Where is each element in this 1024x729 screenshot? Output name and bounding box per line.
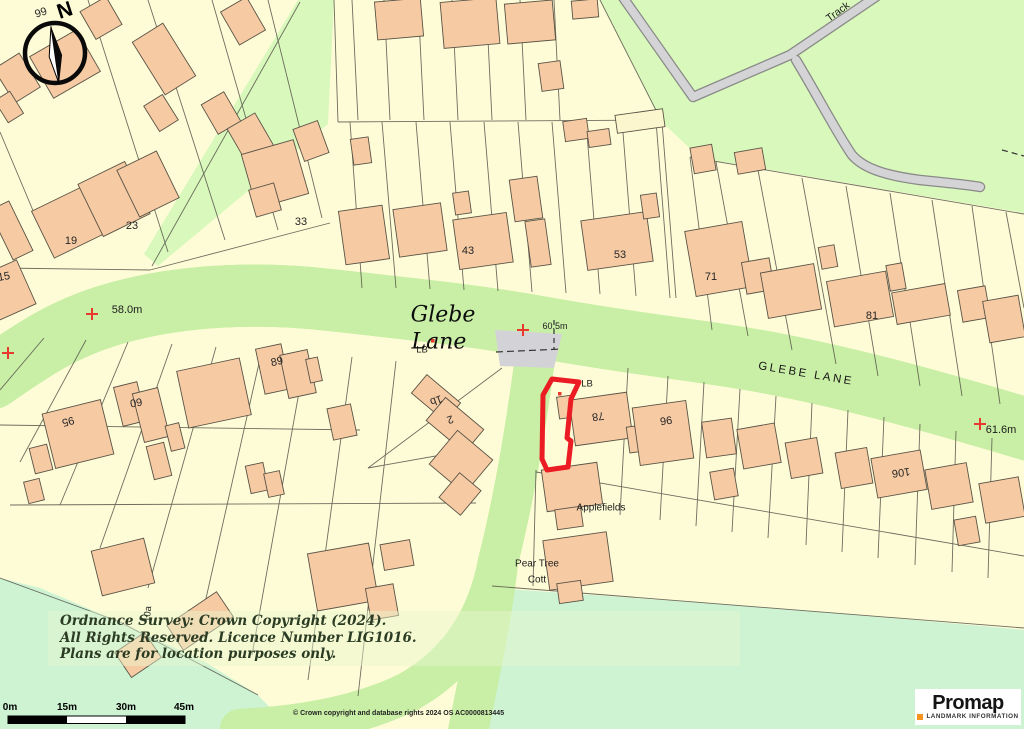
building-footprint bbox=[29, 444, 53, 474]
building-footprint bbox=[350, 137, 371, 165]
building-footprint bbox=[538, 61, 564, 92]
copyright-line: Plans are for location purposes only. bbox=[60, 646, 417, 663]
building-footprint bbox=[393, 203, 447, 257]
building-footprint bbox=[569, 392, 633, 446]
building-footprint bbox=[380, 540, 414, 571]
building-footprint bbox=[557, 580, 584, 603]
building-footprint bbox=[835, 447, 873, 488]
building-footprint bbox=[632, 401, 694, 466]
scale-label-45m: 45m bbox=[174, 702, 194, 713]
parcel-boundary-line bbox=[732, 389, 740, 532]
building-footprint bbox=[871, 450, 927, 498]
building-footprint bbox=[886, 263, 906, 291]
scale-bar bbox=[8, 716, 185, 724]
parcel-boundary-line bbox=[352, 0, 358, 120]
parcel-boundary-line bbox=[0, 268, 150, 270]
building-footprint bbox=[165, 423, 185, 452]
building-footprint bbox=[983, 295, 1024, 343]
building-footprint bbox=[42, 400, 114, 469]
building-footprint bbox=[760, 264, 821, 319]
building-footprint bbox=[954, 516, 980, 545]
building-footprint bbox=[264, 471, 285, 498]
building-footprint bbox=[504, 0, 555, 44]
parcel-boundary-line bbox=[620, 368, 628, 515]
os-attribution: © Crown copyright and database rights 20… bbox=[293, 710, 504, 717]
building-footprint bbox=[587, 129, 611, 148]
promap-logo: Promap LANDMARK INFORMATION bbox=[915, 689, 1021, 725]
parcel-boundary-line bbox=[10, 503, 476, 505]
building-footprint bbox=[132, 388, 169, 443]
parcel-boundary-line bbox=[338, 120, 660, 122]
building-footprint bbox=[685, 221, 754, 296]
building-footprint bbox=[979, 477, 1024, 523]
building-footprint bbox=[818, 245, 838, 269]
building-footprint bbox=[374, 0, 423, 40]
building-footprint bbox=[327, 404, 357, 440]
building-footprint bbox=[132, 23, 195, 95]
building-footprint bbox=[177, 358, 252, 428]
building-footprint bbox=[525, 219, 551, 267]
scale-label-30m: 30m bbox=[116, 702, 136, 713]
building-footprint bbox=[30, 30, 101, 99]
building-footprint bbox=[581, 212, 653, 271]
building-footprint bbox=[737, 423, 781, 469]
map-viewport: 99N15192333435371819560891b2789610610a58… bbox=[0, 0, 1024, 729]
building-footprint bbox=[453, 191, 472, 215]
building-footprint bbox=[710, 468, 738, 500]
parcel-boundary-line bbox=[915, 424, 920, 565]
parcel-boundary-line bbox=[554, 0, 560, 120]
building-footprint bbox=[734, 148, 765, 175]
building-footprint bbox=[0, 260, 36, 320]
promap-logo-tagline: LANDMARK INFORMATION bbox=[926, 713, 1018, 720]
building-footprint bbox=[338, 205, 389, 265]
scale-label-15m: 15m bbox=[57, 702, 77, 713]
parcel-boundary-line bbox=[696, 382, 704, 526]
building-footprint bbox=[221, 0, 266, 45]
building-footprint bbox=[509, 176, 543, 221]
building-footprint bbox=[925, 463, 973, 510]
building-footprint bbox=[826, 271, 893, 327]
parcel-boundary-line bbox=[622, 120, 636, 296]
building-footprint bbox=[555, 506, 584, 529]
parcel-boundary-line bbox=[382, 122, 396, 288]
scale-label-0m: 0m bbox=[3, 702, 17, 713]
parcel-boundary-line bbox=[768, 396, 776, 538]
building-footprint bbox=[144, 94, 179, 131]
building-footprint bbox=[453, 212, 513, 269]
building-footprint bbox=[690, 144, 716, 173]
building-footprint bbox=[80, 0, 122, 39]
copyright-line: All Rights Reserved. Licence Number LIG1… bbox=[60, 630, 417, 647]
building-footprint bbox=[615, 109, 665, 134]
building-footprint bbox=[702, 418, 737, 458]
copyright-line: Ordnance Survey: Crown Copyright (2024). bbox=[60, 613, 417, 630]
building-footprint bbox=[563, 118, 590, 141]
building-footprint bbox=[440, 0, 500, 48]
building-footprint bbox=[146, 442, 172, 479]
building-footprint bbox=[785, 437, 823, 478]
building-footprint bbox=[640, 193, 659, 219]
promap-orange-dot-icon bbox=[917, 714, 923, 720]
building-footprint bbox=[24, 478, 45, 503]
parcel-boundary-line bbox=[662, 122, 676, 298]
building-footprint bbox=[0, 201, 33, 260]
copyright-notice: Ordnance Survey: Crown Copyright (2024).… bbox=[60, 613, 417, 663]
parcel-boundary-line bbox=[334, 0, 338, 122]
building-footprint bbox=[571, 0, 598, 19]
parcel-boundary-line bbox=[1006, 212, 1024, 308]
parcel-boundary-line bbox=[552, 122, 566, 293]
promap-logo-name: Promap bbox=[932, 694, 1003, 713]
